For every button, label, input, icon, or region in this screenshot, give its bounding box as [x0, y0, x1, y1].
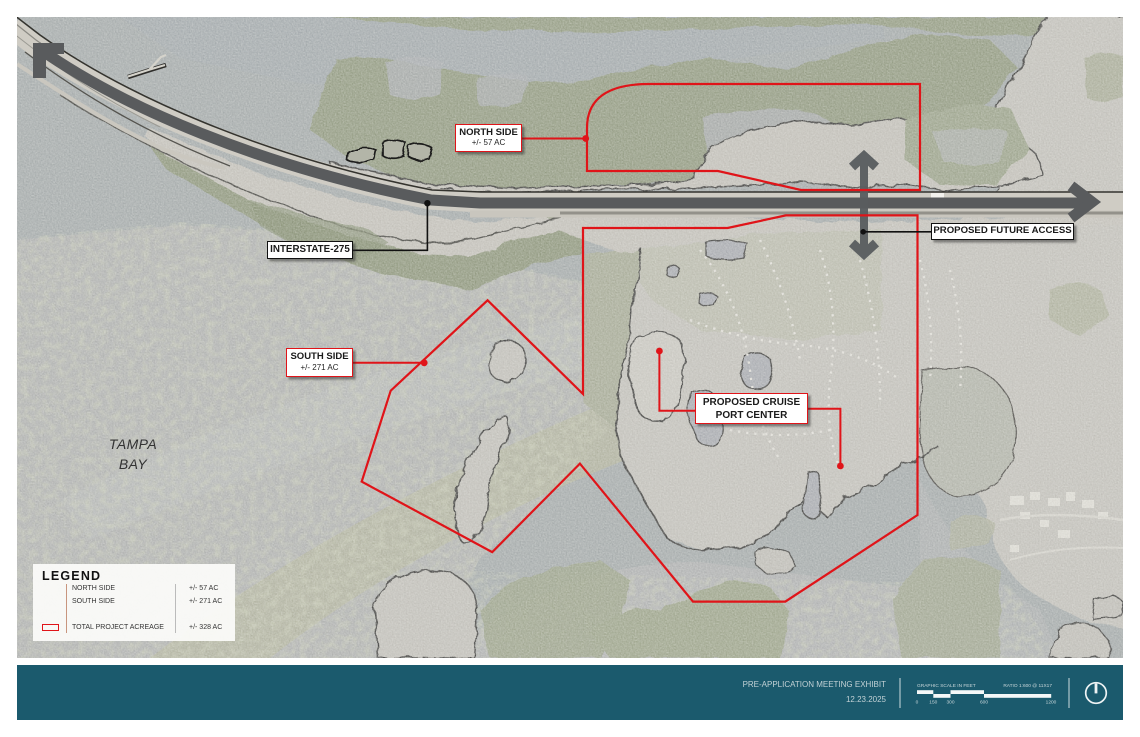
svg-text:BAY: BAY: [119, 456, 148, 472]
svg-text:150: 150: [929, 700, 937, 706]
svg-text:300: 300: [946, 700, 954, 706]
svg-text:TAMPA: TAMPA: [109, 436, 157, 452]
svg-text:600: 600: [980, 700, 988, 706]
svg-text:1200: 1200: [1046, 700, 1057, 706]
svg-text:RATIO 1:600 @ 11X17: RATIO 1:600 @ 11X17: [1003, 683, 1052, 689]
svg-text:GRAPHIC SCALE IN FEET: GRAPHIC SCALE IN FEET: [917, 683, 976, 689]
svg-text:0: 0: [916, 700, 919, 706]
